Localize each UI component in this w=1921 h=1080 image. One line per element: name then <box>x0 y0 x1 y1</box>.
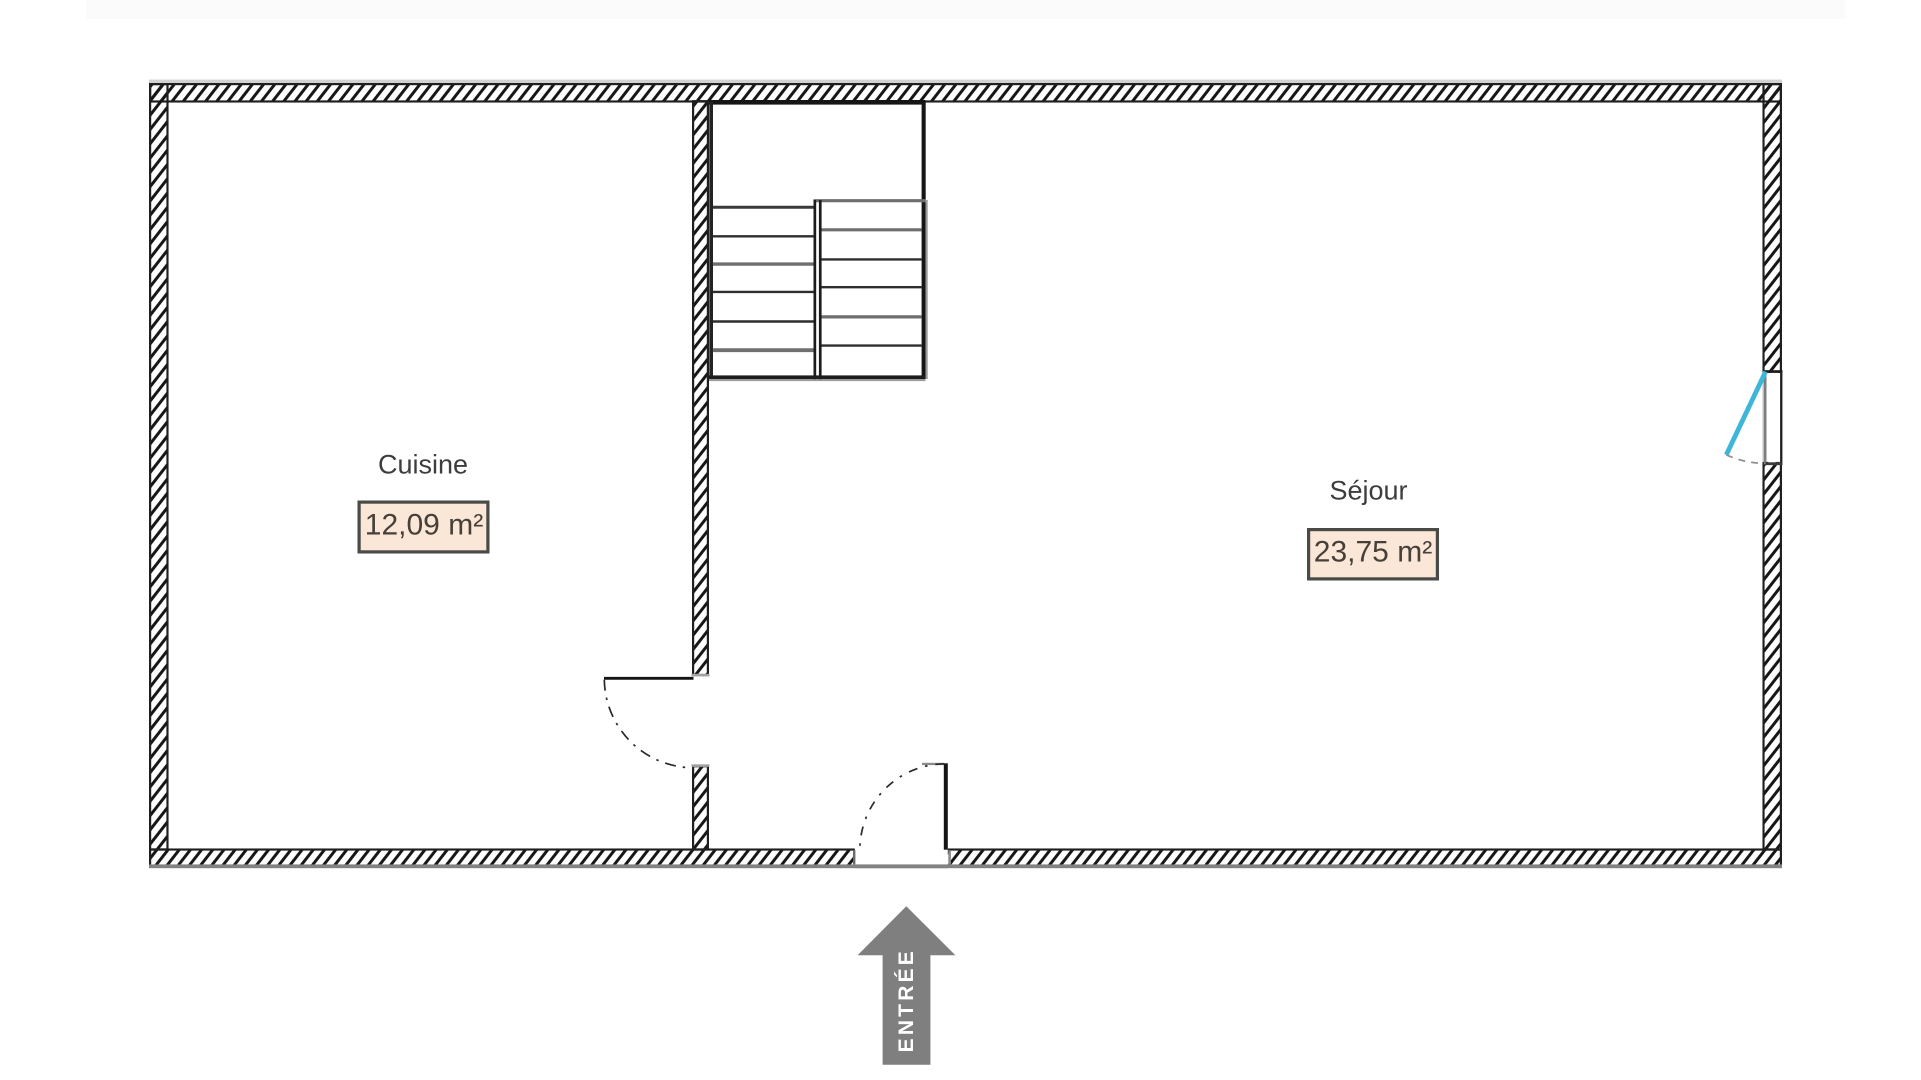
svg-text:Séjour: Séjour <box>1329 476 1407 506</box>
svg-text:ENTRÉE: ENTRÉE <box>895 948 918 1052</box>
svg-text:Cuisine: Cuisine <box>378 450 468 480</box>
svg-text:12,09 m²: 12,09 m² <box>365 509 483 542</box>
svg-text:23,75 m²: 23,75 m² <box>1314 536 1432 569</box>
